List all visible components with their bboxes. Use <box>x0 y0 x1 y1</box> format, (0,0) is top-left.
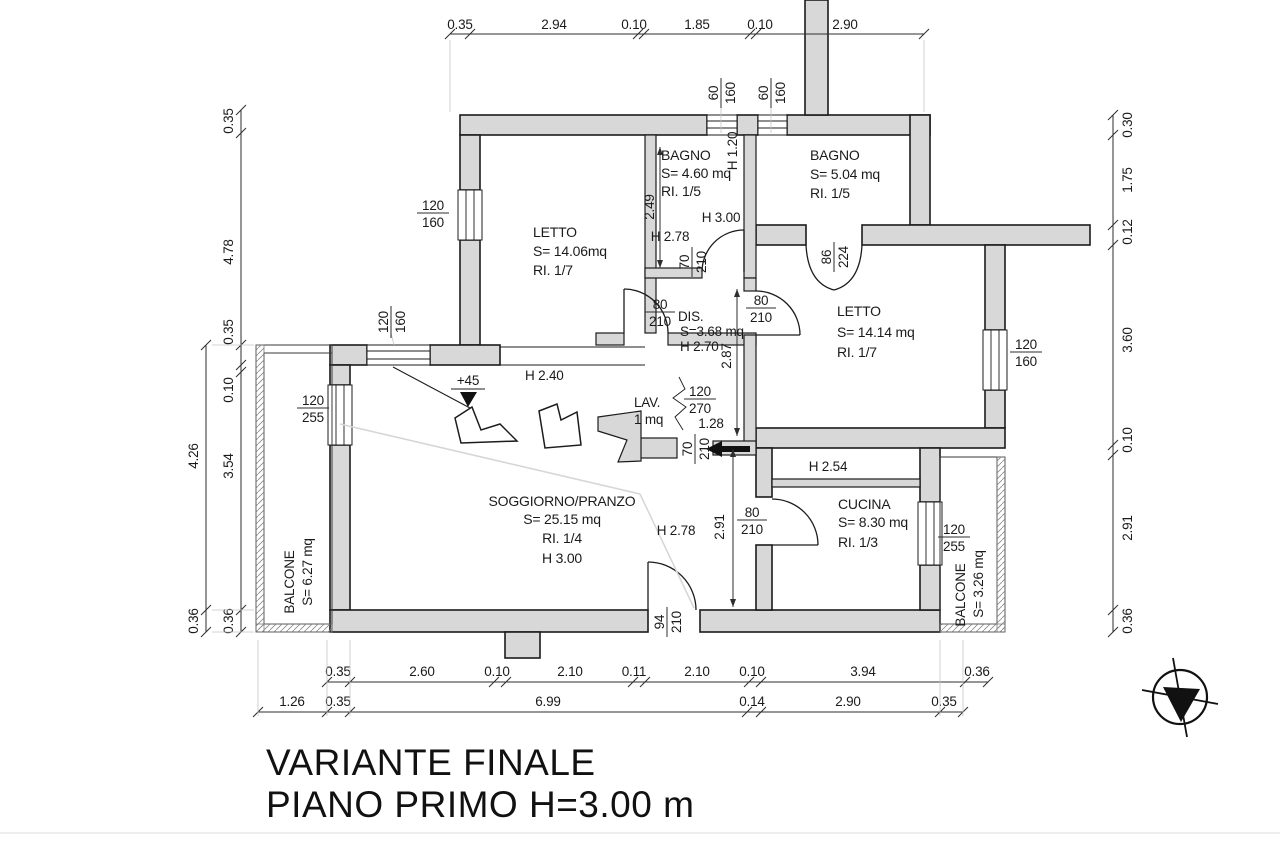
svg-text:0.10: 0.10 <box>739 664 764 679</box>
label-h278-bagno: H 2.78 <box>651 229 690 244</box>
svg-text:0.35: 0.35 <box>221 108 236 133</box>
room-lav-name: LAV. <box>634 395 660 410</box>
svg-text:160: 160 <box>723 82 738 104</box>
svg-text:0.10: 0.10 <box>1120 427 1135 452</box>
window-passage <box>367 345 430 365</box>
window-letto2 <box>983 330 1007 390</box>
room-balcone1-name: BALCONE <box>282 550 297 613</box>
svg-text:120: 120 <box>422 198 444 213</box>
svg-text:2.90: 2.90 <box>835 694 860 709</box>
svg-text:0.10: 0.10 <box>484 664 509 679</box>
north-arrow-icon <box>1142 658 1218 737</box>
break-line <box>673 377 686 430</box>
svg-text:2.90: 2.90 <box>832 17 857 32</box>
svg-text:4.78: 4.78 <box>221 239 236 264</box>
vdim-291 <box>730 449 736 607</box>
label-win-top1: 60160 <box>706 78 738 108</box>
room-cucina-name: CUCINA <box>838 496 891 512</box>
room-dis-h: H 2.70 <box>680 339 719 354</box>
svg-text:1.26: 1.26 <box>279 694 304 709</box>
room-dis-name: DIS. <box>678 309 703 324</box>
room-bagno1-area: S= 4.60 mq <box>661 165 731 181</box>
svg-text:0.12: 0.12 <box>1120 219 1135 244</box>
svg-text:70: 70 <box>677 255 692 270</box>
floor-plan-page: LETTO S= 14.06mq RI. 1/7 BAGNO S= 4.60 m… <box>0 0 1280 850</box>
svg-text:2.91: 2.91 <box>1120 515 1135 540</box>
door-entrance <box>648 562 696 610</box>
svg-text:0.35: 0.35 <box>447 17 472 32</box>
drawing-title-line1: VARIANTE FINALE <box>266 742 596 783</box>
svg-text:0.14: 0.14 <box>739 694 765 709</box>
svg-text:210: 210 <box>750 310 772 325</box>
svg-text:0.35: 0.35 <box>325 664 350 679</box>
label-door-letto2: 80210 <box>746 293 776 325</box>
label-win-cucina: 120255 <box>938 522 970 554</box>
svg-text:1.75: 1.75 <box>1120 167 1135 192</box>
room-cucina-ri: RI. 1/3 <box>838 534 878 550</box>
svg-text:0.35: 0.35 <box>325 694 350 709</box>
label-win-passage: 120160 <box>376 306 408 338</box>
room-letto1-area: S= 14.06mq <box>533 243 607 259</box>
label-h300: H 3.00 <box>702 210 741 225</box>
chain-bottom-1: 0.35 2.60 0.10 2.10 0.11 2.10 0.10 3.94 … <box>322 664 993 687</box>
room-bagno1-name: BAGNO <box>661 147 711 163</box>
svg-text:120: 120 <box>689 384 711 399</box>
svg-text:60: 60 <box>756 86 771 101</box>
door-cucina <box>772 499 818 545</box>
window-top-2 <box>758 115 787 135</box>
floor-plan-drawing: LETTO S= 14.06mq RI. 1/7 BAGNO S= 4.60 m… <box>0 0 1280 850</box>
svg-text:2.10: 2.10 <box>557 664 582 679</box>
svg-text:224: 224 <box>836 245 851 268</box>
slope-shape-2 <box>539 404 581 448</box>
room-balcone1-area: S= 6.27 mq <box>300 538 315 605</box>
room-bagno2-ri: RI. 1/5 <box>810 185 850 201</box>
room-letto2-ri: RI. 1/7 <box>837 344 877 360</box>
label-door-corr: 70210 <box>680 434 712 464</box>
svg-text:160: 160 <box>393 311 408 333</box>
room-soggiorno-area: S= 25.15 mq <box>523 511 601 527</box>
room-dis-area: S=3.68 mq <box>680 324 744 339</box>
label-h278-sogg: H 2.78 <box>657 523 696 538</box>
room-labels: LETTO S= 14.06mq RI. 1/7 BAGNO S= 4.60 m… <box>282 147 986 627</box>
svg-text:120: 120 <box>302 393 324 408</box>
svg-text:60: 60 <box>706 86 721 101</box>
svg-text:0.35: 0.35 <box>931 694 956 709</box>
svg-text:0.36: 0.36 <box>1120 608 1135 633</box>
room-bagno2-name: BAGNO <box>810 147 860 163</box>
svg-text:3.60: 3.60 <box>1120 327 1135 352</box>
chimney <box>805 0 828 115</box>
label-win-top2: 60160 <box>756 78 788 108</box>
svg-text:4.26: 4.26 <box>186 443 201 468</box>
svg-text:2.94: 2.94 <box>541 17 567 32</box>
svg-text:210: 210 <box>649 314 671 329</box>
chain-right: 0.30 1.75 0.12 3.60 0.10 2.91 0.36 <box>1108 110 1135 637</box>
svg-text:6.99: 6.99 <box>535 694 560 709</box>
svg-text:210: 210 <box>694 251 709 273</box>
svg-text:3.54: 3.54 <box>221 453 236 479</box>
chain-left-outer: 4.26 0.36 <box>186 340 211 637</box>
svg-text:0.36: 0.36 <box>221 608 236 633</box>
room-balcone2-area: S= 3.26 mq <box>971 550 986 617</box>
svg-text:94: 94 <box>652 614 667 629</box>
svg-text:120: 120 <box>1015 337 1037 352</box>
svg-text:0.10: 0.10 <box>621 17 646 32</box>
label-dim-287: 2.87 <box>719 343 734 368</box>
svg-text:160: 160 <box>773 82 788 104</box>
svg-text:0.36: 0.36 <box>964 664 989 679</box>
svg-text:1.85: 1.85 <box>684 17 709 32</box>
label-win-sogg: 120255 <box>297 393 329 425</box>
chain-top: 0.35 2.94 0.10 1.85 0.10 2.90 <box>445 17 929 39</box>
label-dim-291: 2.91 <box>712 514 727 539</box>
level-marker-icon <box>460 392 477 407</box>
svg-text:0.11: 0.11 <box>622 664 646 679</box>
drawing-title-line2: PIANO PRIMO H=3.00 m <box>266 784 694 825</box>
svg-text:210: 210 <box>669 611 684 633</box>
entry-step <box>505 632 540 658</box>
chain-bottom-2: 1.26 0.35 6.99 0.14 2.90 0.35 <box>253 694 968 717</box>
label-h120: H 1.20 <box>725 132 740 171</box>
svg-text:0.36: 0.36 <box>186 608 201 633</box>
svg-text:2.10: 2.10 <box>684 664 709 679</box>
svg-text:70: 70 <box>680 442 695 457</box>
chain-left-inner: 0.35 4.78 0.35 0.10 3.54 0.36 <box>221 105 246 637</box>
room-bagno1-ri: RI. 1/5 <box>661 183 701 199</box>
svg-text:3.94: 3.94 <box>850 664 876 679</box>
room-soggiorno-name: SOGGIORNO/PRANZO <box>489 493 636 509</box>
room-cucina-area: S= 8.30 mq <box>838 514 908 530</box>
svg-text:0.30: 0.30 <box>1120 112 1135 137</box>
svg-text:210: 210 <box>741 522 763 537</box>
label-win-letto1: 120160 <box>417 198 449 230</box>
svg-text:255: 255 <box>302 410 324 425</box>
label-h254: H 2.54 <box>809 459 848 474</box>
svg-text:86: 86 <box>819 250 834 265</box>
window-cucina <box>918 502 942 565</box>
svg-text:160: 160 <box>1015 354 1037 369</box>
label-h240: H 2.40 <box>525 368 564 383</box>
label-door-cucina: 80210 <box>737 505 767 537</box>
svg-text:255: 255 <box>943 539 965 554</box>
label-door-bagno2: 86224 <box>819 242 851 272</box>
vdim-287 <box>734 289 740 436</box>
svg-text:0.10: 0.10 <box>221 377 236 402</box>
room-letto1-ri: RI. 1/7 <box>533 262 573 278</box>
svg-text:1.28: 1.28 <box>698 416 723 431</box>
svg-text:80: 80 <box>745 505 760 520</box>
svg-text:2.60: 2.60 <box>409 664 434 679</box>
wall-pier <box>638 438 677 458</box>
label-door-entry: 94210 <box>652 607 684 637</box>
svg-text:160: 160 <box>422 215 444 230</box>
room-bagno2-area: S= 5.04 mq <box>810 166 880 182</box>
window-letto1 <box>458 190 482 240</box>
room-balcone2-name: BALCONE <box>953 563 968 626</box>
label-dim-249: 2.49 <box>642 194 657 219</box>
svg-text:80: 80 <box>754 293 769 308</box>
label-open-lav: 1202701.28 <box>684 384 724 431</box>
svg-text:80: 80 <box>653 297 668 312</box>
room-letto1-name: LETTO <box>533 224 577 240</box>
slope-shape-1 <box>455 407 517 443</box>
room-lav-area: 1 mq <box>634 412 663 427</box>
room-soggiorno-ri: RI. 1/4 <box>542 530 582 546</box>
label-win-letto2: 120160 <box>1010 337 1042 369</box>
label-level-45: +45 <box>457 373 479 388</box>
svg-text:270: 270 <box>689 401 711 416</box>
balconies <box>256 345 1005 632</box>
room-letto2-area: S= 14.14 mq <box>837 324 915 340</box>
room-soggiorno-h: H 3.00 <box>542 550 582 566</box>
room-letto2-name: LETTO <box>837 303 881 319</box>
svg-text:210: 210 <box>697 438 712 460</box>
svg-text:120: 120 <box>943 522 965 537</box>
title-block: VARIANTE FINALE PIANO PRIMO H=3.00 m <box>0 742 1280 833</box>
svg-text:0.10: 0.10 <box>747 17 772 32</box>
svg-text:0.35: 0.35 <box>221 319 236 344</box>
svg-text:120: 120 <box>376 311 391 333</box>
